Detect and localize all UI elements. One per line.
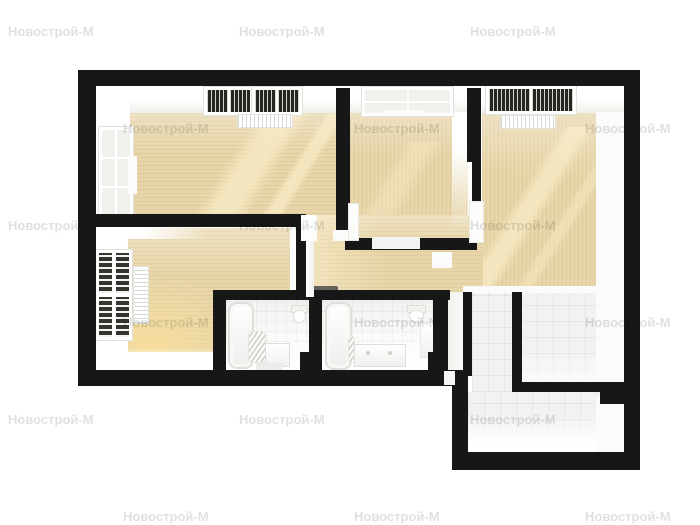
window-pane [117,130,130,157]
open-door-leaf [349,204,358,240]
towel-ladder-radiator [249,332,265,362]
window-pane [409,90,451,101]
wall-face-corridor [306,241,314,297]
watermark-text: Новострой-М [585,509,671,524]
living-room-floor [130,112,337,218]
wall-living-middle [336,88,350,237]
bedroom-right-ceiling-window [486,86,576,114]
window-pane [207,90,228,112]
bedroom-lower-radiator [133,266,149,324]
watermark-text: Новострой-М [354,509,440,524]
bedroom-lower-blinds-window [96,250,132,340]
watermark-text: Новострой-М [239,24,325,39]
entry-hall-east-wall-face [596,396,624,452]
exterior-wall-bottom-left [78,370,456,386]
window-pane [489,89,530,111]
living-room-radiator [237,114,293,128]
bedroom-right-radiator [500,115,556,129]
wall-hallway-left [463,292,472,376]
window-pane [116,297,129,337]
window-pane [102,159,115,186]
faucet [366,351,370,355]
wall-middle-right-lower [472,162,481,204]
kitchen-floor-highlight [521,350,596,386]
window-pane [99,297,112,337]
wall-living-bedroom [78,214,301,227]
faucet [388,351,392,355]
window-pane [116,253,129,293]
hallway-strip-floor [472,292,512,392]
toilet [291,305,308,323]
toilet [407,305,426,323]
watermark-text: Новострой-М [470,24,556,39]
wall-kitchen-divider [512,292,522,390]
watermark-text: Новострой-М [8,412,94,427]
toilet-bowl [293,310,306,323]
living-room-ceiling-window-1 [204,87,253,115]
wall-junction-highlight [444,371,455,385]
wall-middle-right [467,88,481,162]
bedroom-right-floor [482,112,596,292]
wall-face-bedroom [98,227,208,239]
bedroom-middle-east-wall-face [452,112,468,232]
doorway-jamb-cap [301,215,317,241]
floor-threshold-trim [463,286,596,293]
window-pane [278,90,299,112]
wall-bathroom-divider-chunk [300,352,322,374]
exterior-wall-top [78,70,640,86]
wall-entry-chunk [600,388,630,404]
window-pane [532,89,573,111]
wall-bathrooms-top [213,290,450,300]
open-door-leaf [470,202,483,242]
bathroom-2 [322,300,434,372]
window-pane [230,90,251,112]
duct-shaft [448,292,463,376]
double-vanity [354,344,406,367]
door-frame-piece [432,252,452,268]
exterior-wall-bottom-right [452,452,640,470]
watermark-text: Новострой-М [123,509,209,524]
window-pane [365,90,407,101]
bath-mat [256,363,283,370]
floor-plan-image: Новострой-МНовострой-МНовострой-МНовостр… [0,0,700,525]
doorway-lintel [372,237,420,249]
window-pane [102,130,115,157]
bathroom-1 [226,300,310,372]
window-sill-panel [383,110,424,116]
living-room-ceiling-window-2 [252,87,302,115]
exterior-wall-right [624,70,640,470]
watermark-text: Новострой-М [8,24,94,39]
window-pane [102,188,115,215]
window-pane [255,90,276,112]
wall-bathroom1-left [213,290,226,374]
exterior-wall-left [78,70,96,386]
watermark-text: Новострой-М [239,412,325,427]
window-sill-panel [128,156,137,194]
bathtub [325,302,352,370]
window-pane [99,253,112,293]
